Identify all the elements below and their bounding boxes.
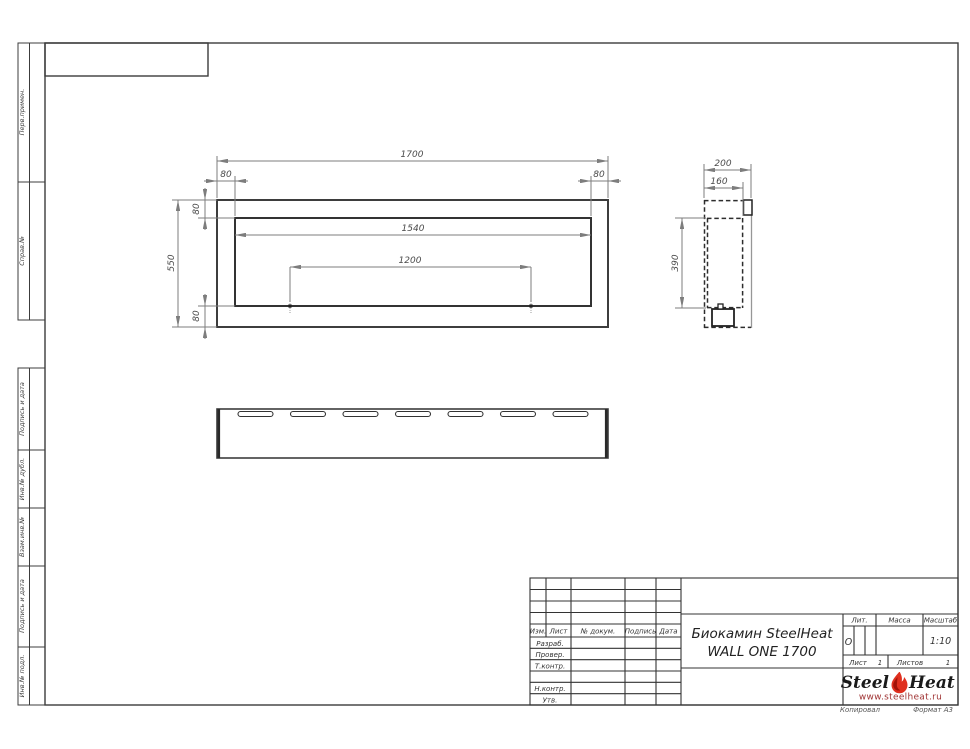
vent-slot: [501, 412, 536, 417]
tb-col-list: Лист: [549, 628, 569, 636]
mount-hole-right: [529, 299, 532, 313]
copied-label: Копировал: [840, 706, 881, 714]
margin-label-vzam-inv: Взам.инв.№: [18, 517, 26, 557]
front-view-dimensions: [172, 156, 621, 339]
dim-wall-vert-bottom: 80: [192, 310, 202, 322]
dim-front-height: 550: [167, 254, 177, 271]
top-left-designation-box: [45, 43, 208, 76]
tb-lit-value: О: [845, 637, 853, 648]
tb-mass-label: Масса: [888, 617, 910, 625]
vent-slot: [343, 412, 378, 417]
tb-sheets-value: 1: [946, 659, 950, 667]
vent-slot: [448, 412, 483, 417]
vent-slots: [238, 412, 588, 417]
tb-row-nkontr: Н.контр.: [534, 685, 565, 693]
side-view-dim-texts: 200 160 390: [671, 159, 732, 272]
bottom-view: [217, 409, 608, 458]
flame-icon: [892, 672, 908, 694]
side-mount-bracket: [744, 200, 753, 215]
dim-mount-spacing: 1200: [399, 256, 422, 266]
margin-label-inv-dubl: Инв.№ дубл.: [18, 458, 26, 500]
mount-hole-left: [288, 299, 291, 313]
steelheat-logo: Steel Heat www.steelheat.ru: [841, 672, 955, 703]
tb-sheet-label: Лист: [848, 659, 868, 667]
side-burner-block: [712, 309, 734, 326]
tb-lit-label: Лит.: [850, 617, 867, 625]
dim-wall-top-right: 80: [593, 170, 605, 180]
drawing-sheet: Перв.примен. Справ.№ Подпись и дата Инв.…: [0, 0, 970, 749]
vent-slot: [291, 412, 326, 417]
front-view: 1700 80 80 550 80 80 1540 1200: [167, 150, 621, 339]
dim-front-width: 1700: [401, 150, 424, 160]
margin-label-inv-podl: Инв.№ подл.: [18, 655, 26, 698]
margin-label-podpis-data-2: Подпись и дата: [18, 579, 26, 633]
tb-row-prover: Провер.: [535, 651, 564, 659]
tb-col-izm: Изм.: [530, 628, 546, 636]
margin-label-perv-primen: Перв.примен.: [18, 89, 26, 136]
tb-scale-label: Масштаб: [924, 617, 958, 625]
doc-title-line1: Биокамин SteelHeat: [691, 626, 833, 642]
tb-row-tkontr: Т.контр.: [535, 663, 565, 671]
tb-row-razrab: Разраб.: [536, 640, 564, 648]
tb-col-dokum: № докум.: [580, 628, 616, 636]
dim-depth: 200: [714, 159, 731, 169]
dim-firebox-height: 390: [671, 254, 681, 271]
tb-scale-value: 1:10: [930, 636, 951, 647]
drawing-canvas: Перв.примен. Справ.№ Подпись и дата Инв.…: [0, 0, 970, 749]
logo-heat-text: Heat: [908, 673, 955, 693]
logo-url: www.steelheat.ru: [859, 693, 942, 703]
tb-col-data: Дата: [658, 628, 677, 636]
front-view-dim-texts: 1700 80 80 550 80 80 1540 1200: [167, 150, 605, 322]
vent-slot: [238, 412, 273, 417]
margin-label-sprav: Справ.№: [18, 236, 26, 266]
doc-title-line2: WALL ONE 1700: [707, 644, 816, 660]
title-block-texts: Изм. Лист № докум. Подпись Дата Разраб. …: [530, 617, 958, 705]
vent-slot: [396, 412, 431, 417]
dim-wall-vert-top: 80: [192, 203, 202, 215]
tb-col-podpis: Подпись: [625, 628, 657, 636]
vent-slot: [553, 412, 588, 417]
margin-labels: Перв.примен. Справ.№ Подпись и дата Инв.…: [18, 89, 26, 698]
tb-sheets-label: Листов: [896, 659, 923, 667]
dim-inner-width: 1540: [402, 224, 425, 234]
logo-steel-text: Steel: [841, 673, 890, 693]
dim-wall-top-left: 80: [220, 170, 232, 180]
tb-sheet-value: 1: [878, 659, 882, 667]
margin-label-podpis-data-1: Подпись и дата: [18, 382, 26, 436]
frame: [45, 43, 958, 705]
format-label: Формат А3: [913, 706, 953, 714]
tb-row-utv: Утв.: [543, 697, 558, 705]
side-burner-nub: [718, 304, 723, 309]
frame-border: [45, 43, 958, 705]
side-view: 200 160 390: [671, 159, 752, 328]
dim-inner-depth: 160: [710, 177, 727, 187]
